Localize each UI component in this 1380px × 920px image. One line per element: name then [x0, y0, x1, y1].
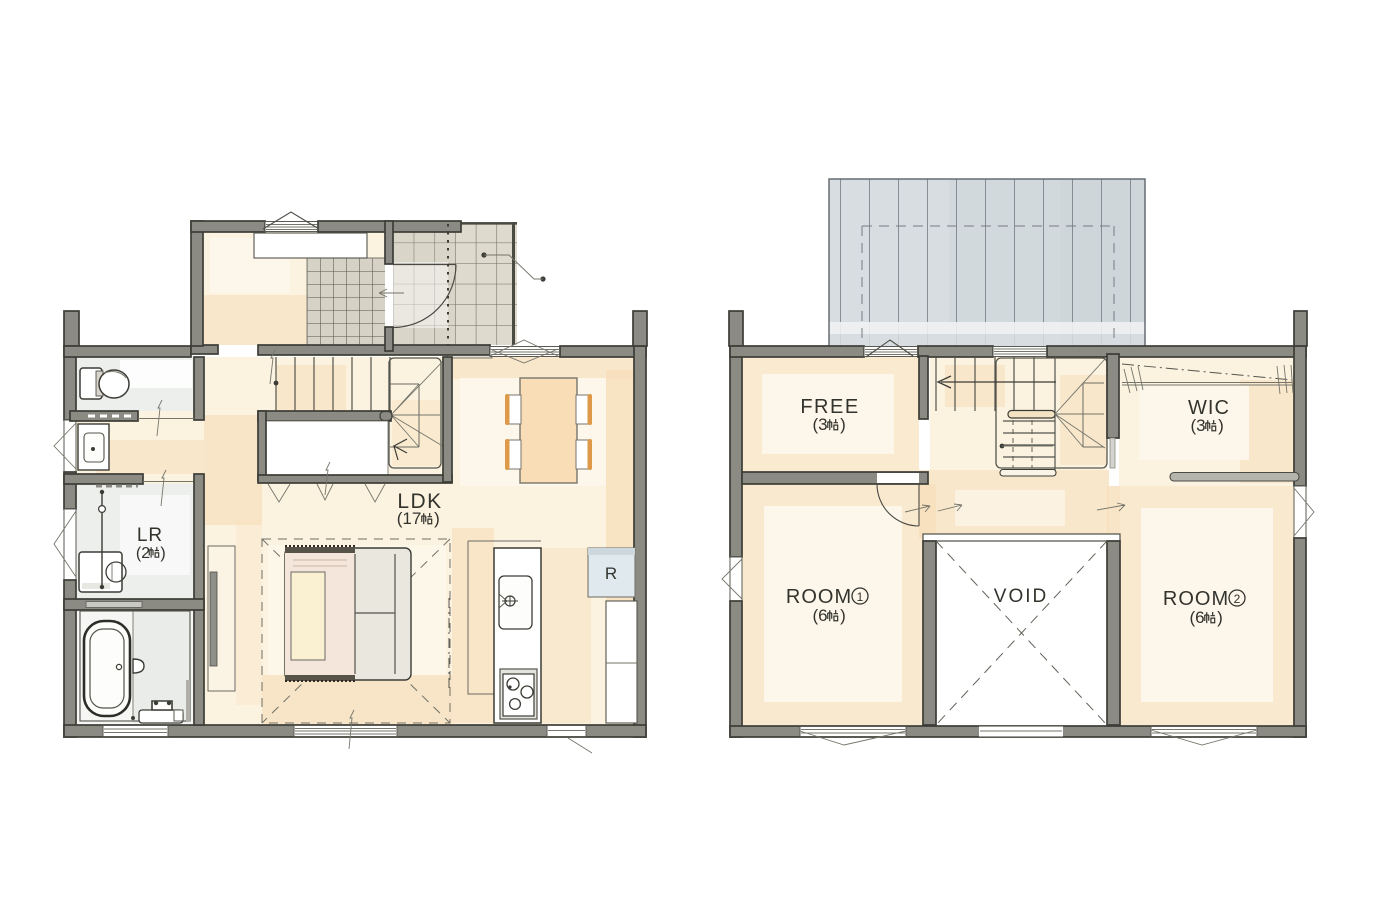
- svg-text:R: R: [605, 564, 617, 583]
- svg-text:): ): [1217, 608, 1223, 627]
- svg-text:LR: LR: [137, 525, 163, 546]
- svg-text:2: 2: [1234, 592, 1241, 606]
- svg-text:1: 1: [857, 590, 864, 604]
- svg-text:VOID: VOID: [994, 586, 1048, 607]
- svg-text:ROOM: ROOM: [786, 586, 852, 608]
- svg-text:FREE: FREE: [800, 396, 859, 418]
- svg-text:): ): [160, 545, 165, 562]
- svg-text:): ): [434, 509, 440, 528]
- svg-text:(6: (6: [1189, 608, 1204, 627]
- svg-text:ROOM: ROOM: [1163, 588, 1229, 610]
- svg-text:(17: (17: [397, 509, 422, 528]
- svg-text:(2: (2: [136, 545, 150, 562]
- svg-text:(6: (6: [812, 606, 827, 625]
- svg-text:): ): [1218, 416, 1224, 435]
- svg-text:(3: (3: [812, 415, 827, 434]
- svg-text:(3: (3: [1190, 416, 1205, 435]
- svg-text:): ): [840, 415, 846, 434]
- svg-text:): ): [840, 606, 846, 625]
